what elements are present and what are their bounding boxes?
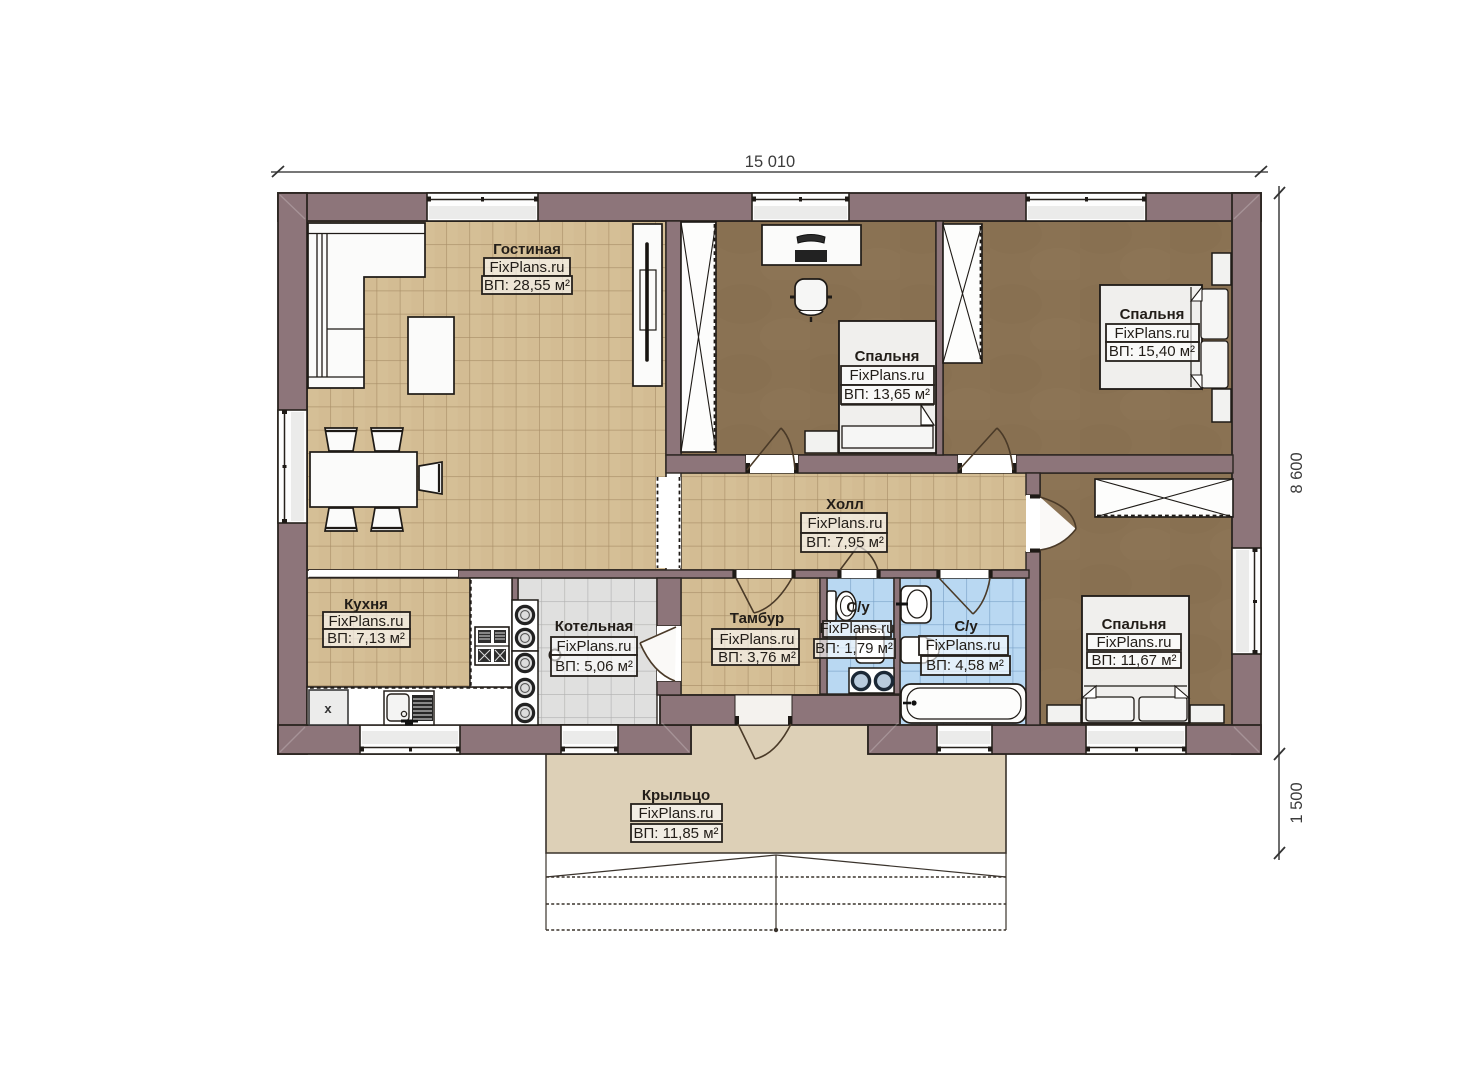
svg-text:ВП: 7,95 м²: ВП: 7,95 м² [806,534,884,551]
svg-text:15 010: 15 010 [745,153,795,171]
svg-text:Спальня: Спальня [1102,616,1167,633]
svg-text:FixPlans.ru: FixPlans.ru [925,637,1000,654]
svg-text:Спальня: Спальня [855,348,920,365]
svg-text:FixPlans.ru: FixPlans.ru [489,259,564,276]
svg-text:С/у: С/у [846,599,870,616]
svg-text:ВП: 4,58 м²: ВП: 4,58 м² [926,657,1004,674]
svg-text:ВП: 11,85 м²: ВП: 11,85 м² [633,825,718,842]
svg-text:FixPlans.ru: FixPlans.ru [1096,634,1171,651]
svg-text:FixPlans.ru: FixPlans.ru [556,638,631,655]
svg-text:Тамбур: Тамбур [730,610,784,627]
svg-text:Холл: Холл [826,496,864,513]
svg-text:ВП: 3,76 м²: ВП: 3,76 м² [718,649,796,666]
svg-text:FixPlans.ru: FixPlans.ru [638,805,713,822]
svg-text:FixPlans.ru: FixPlans.ru [807,515,882,532]
svg-text:Спальня: Спальня [1120,306,1185,323]
svg-text:Гостиная: Гостиная [493,241,561,258]
svg-text:ВП: 5,06 м²: ВП: 5,06 м² [555,658,633,675]
svg-text:Кухня: Кухня [344,596,388,613]
svg-text:FixPlans.ru: FixPlans.ru [819,620,894,637]
svg-text:Котельная: Котельная [555,618,634,635]
svg-text:FixPlans.ru: FixPlans.ru [719,631,794,648]
svg-text:ВП: 15,40 м²: ВП: 15,40 м² [1109,343,1195,360]
svg-text:Крыльцо: Крыльцо [642,787,710,804]
svg-text:x: x [324,701,332,716]
svg-text:С/у: С/у [954,618,978,635]
svg-text:8 600: 8 600 [1288,452,1306,493]
svg-text:1 500: 1 500 [1288,782,1306,823]
svg-text:FixPlans.ru: FixPlans.ru [328,613,403,630]
svg-text:ВП: 13,65 м²: ВП: 13,65 м² [844,386,930,403]
svg-text:ВП: 28,55 м²: ВП: 28,55 м² [484,277,570,294]
svg-text:ВП: 1,79 м²: ВП: 1,79 м² [815,640,893,657]
svg-text:ВП: 11,67 м²: ВП: 11,67 м² [1091,652,1176,669]
svg-text:FixPlans.ru: FixPlans.ru [1114,325,1189,342]
svg-text:FixPlans.ru: FixPlans.ru [849,367,924,384]
svg-text:ВП: 7,13 м²: ВП: 7,13 м² [327,630,405,647]
